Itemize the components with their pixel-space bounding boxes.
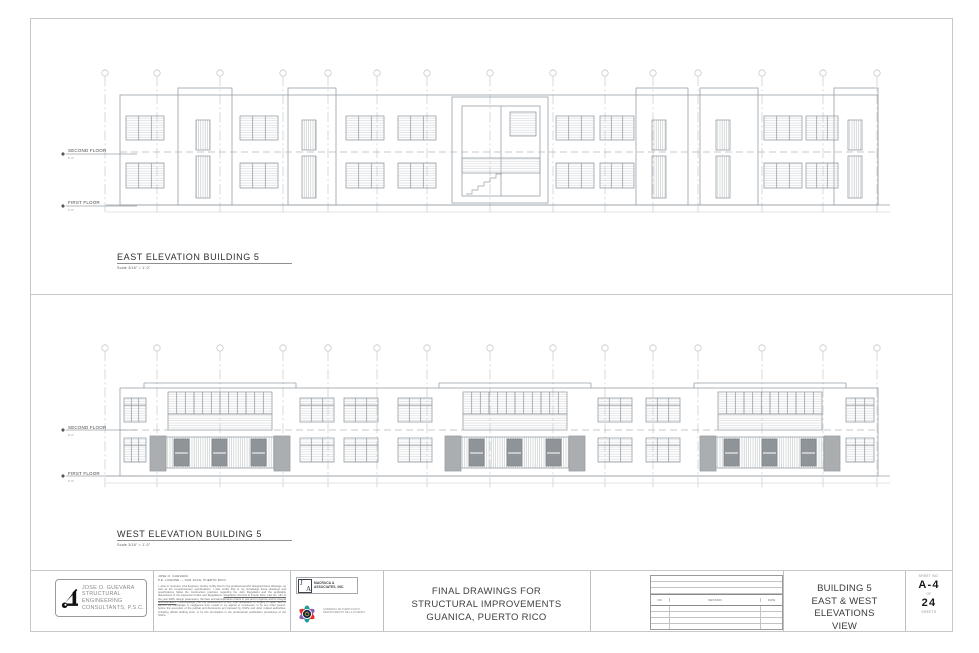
east-elevation-scale: Scale 3/16" = 1'-0": [117, 266, 150, 270]
sheet-total: 24: [906, 598, 952, 609]
jg-logo-icon: [58, 581, 80, 615]
east-elevation-title: EAST ELEVATION BUILDING 5: [117, 252, 260, 262]
floor-elevation-value: 9'-0": [68, 433, 106, 439]
revision-col-no: NO.: [651, 598, 670, 602]
ja-monogram-icon: J A: [298, 579, 312, 593]
certification-note: JOSE O. GUEVARA P.E. LICENSE — SAN JUAN,…: [158, 575, 286, 617]
west-second-floor-label: SECOND FLOOR 9'-0": [68, 425, 106, 439]
sheet-number: A-4: [906, 580, 952, 591]
floor-label-text: FIRST FLOOR: [68, 200, 100, 205]
engineer-name-block: JOSE O. GUEVARA STRUCTURAL ENGINEERING C…: [82, 585, 144, 611]
revision-row: [651, 624, 782, 629]
titleblock-divider: [290, 571, 291, 631]
macruca-name: MACRUCA & ASSOCIATES, INC.: [314, 582, 344, 590]
floor-label-text: FIRST FLOOR: [68, 471, 100, 476]
floor-elevation-value: 9'-0": [68, 156, 106, 162]
floor-label-text: SECOND FLOOR: [68, 148, 106, 153]
macruca-logo: J A MACRUCA & ASSOCIATES, INC.: [296, 577, 358, 594]
titleblock-divider: [153, 571, 154, 631]
certification-paragraph: I, Jose O. Guevara, Civil Engineer, here…: [158, 585, 286, 618]
revision-table: NO. REVISION DATE: [650, 575, 783, 630]
sheet-number-block: SHEET NO. A-4 OF 24 SHEETS: [906, 574, 952, 614]
titleblock-top-border: [30, 570, 953, 571]
titleblock-divider: [783, 571, 784, 631]
sheet-no-label: SHEET NO.: [906, 574, 952, 578]
west-elevation-scale: Scale 3/16" = 1'-0": [117, 543, 150, 547]
west-elevation-title: WEST ELEVATION BUILDING 5: [117, 529, 262, 539]
revision-col-revision: REVISION: [670, 598, 760, 602]
engineer-name: JOSE O. GUEVARA: [82, 585, 144, 592]
east-first-floor-label: FIRST FLOOR 0'-0": [68, 200, 100, 214]
floor-elevation-value: 0'-0": [68, 479, 100, 485]
sheet-title: BUILDING 5 EAST & WEST ELEVATIONS VIEW: [785, 583, 904, 633]
panel-divider: [30, 294, 953, 295]
project-title: FINAL DRAWINGS FOR STRUCTURAL IMPROVEMEN…: [383, 585, 590, 624]
west-first-floor-label: FIRST FLOOR 0'-0": [68, 471, 100, 485]
titleblock-divider: [590, 571, 591, 631]
floor-label-text: SECOND FLOOR: [68, 425, 106, 430]
revision-header-row: NO. REVISION DATE: [651, 594, 782, 606]
government-pinwheel-icon: [296, 599, 323, 629]
drawing-sheet: { "east": { "title": "EAST ELEVATION BUI…: [0, 0, 979, 653]
engineer-logo-box: JOSE O. GUEVARA STRUCTURAL ENGINEERING C…: [55, 579, 147, 617]
government-agency-name: GOBIERNO DE PUERTO RICO DEPARTAMENTO DE …: [323, 608, 365, 615]
revision-col-date: DATE: [760, 598, 782, 602]
east-second-floor-label: SECOND FLOOR 9'-0": [68, 148, 106, 162]
sheet-border: [30, 18, 953, 632]
floor-elevation-value: 0'-0": [68, 208, 100, 214]
